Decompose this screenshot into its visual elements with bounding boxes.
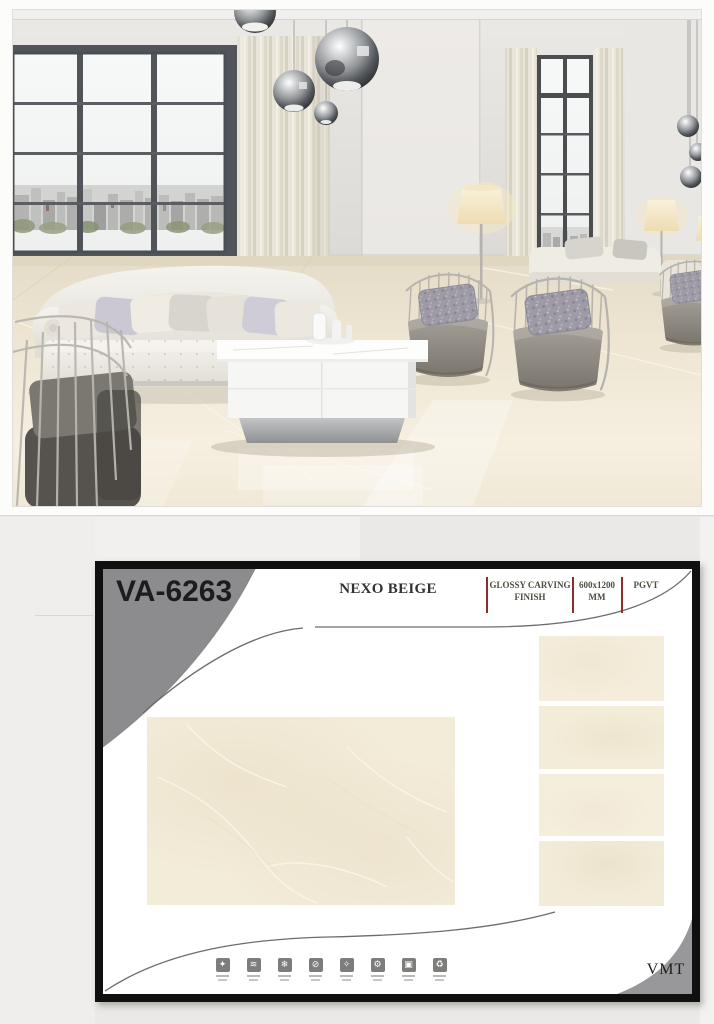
tile-preview-large[interactable] [147, 717, 455, 905]
feature-label-lines [340, 975, 353, 977]
anti-bacterial-icon: ⊘ [309, 958, 323, 972]
brand-logo: VMT [641, 961, 691, 979]
stain-resistant-icon: ✧ [340, 958, 354, 972]
easy-to-clean-icon: ✦ [216, 958, 230, 972]
room-photo [13, 10, 701, 506]
tile-swatch-4[interactable] [539, 841, 664, 906]
spec-size-line1: 600x1200 [579, 580, 615, 590]
feature-icons-row: ✦ ≋ ❄ ⊘ ✧ ⚙ ▣ [215, 958, 447, 981]
feature-stain-resistant: ✧ [339, 958, 354, 981]
feature-label-lines [280, 979, 289, 981]
feature-label-lines [311, 979, 320, 981]
spec-type-line1: PGVT [633, 580, 658, 590]
background-right-strip [700, 517, 714, 1024]
city-skyline [13, 185, 225, 234]
feature-label-lines [433, 975, 446, 977]
frost-proof-icon: ❄ [278, 958, 292, 972]
feature-scratch-resistant: ⚙ [370, 958, 385, 981]
spec-type: PGVT [623, 579, 669, 591]
feature-label-lines [342, 979, 351, 981]
brand-corner [617, 919, 692, 994]
tile-swatch-1[interactable] [539, 636, 664, 701]
feature-label-lines [216, 975, 229, 977]
spec-finish-line1: GLOSSY CARVING [489, 580, 570, 590]
feature-label-lines [435, 979, 444, 981]
double-charge-icon: ▣ [402, 958, 416, 972]
product-card[interactable]: VA-6263 NEXO BEIGE GLOSSY CARVING FINISH… [95, 561, 700, 1002]
eco-friendly-icon: ♻ [433, 958, 447, 972]
product-code: VA-6263 [116, 575, 232, 609]
feature-label-lines [218, 979, 227, 981]
feature-water-resistant: ≋ [246, 958, 261, 981]
spec-size-line2: MM [589, 592, 606, 602]
product-name: NEXO BEIGE [318, 581, 458, 598]
feature-label-lines [371, 975, 384, 977]
room-scene [13, 10, 701, 506]
spec-finish-line2: FINISH [514, 592, 545, 602]
window-right [537, 55, 593, 257]
feature-label-lines [309, 975, 322, 977]
spec-size: 600x1200 MM [574, 579, 620, 603]
spec-finish: GLOSSY CARVING FINISH [489, 579, 571, 603]
scratch-resistant-icon: ⚙ [371, 958, 385, 972]
feature-label-lines [247, 975, 260, 977]
feature-eco-friendly: ♻ [432, 958, 447, 981]
background-fold-line [35, 615, 93, 616]
catalog-section: VA-6263 NEXO BEIGE GLOSSY CARVING FINISH… [0, 517, 714, 1024]
feature-label-lines [278, 975, 291, 977]
room-photo-panel[interactable] [0, 0, 714, 516]
background-left-strip [0, 517, 95, 1024]
feature-label-lines [373, 979, 382, 981]
feature-label-lines [402, 975, 415, 977]
feature-frost-proof: ❄ [277, 958, 292, 981]
feature-easy-to-clean: ✦ [215, 958, 230, 981]
tile-swatch-2[interactable] [539, 706, 664, 769]
feature-label-lines [249, 979, 258, 981]
feature-label-lines [404, 979, 413, 981]
spec-divider [486, 577, 488, 613]
tile-swatch-3[interactable] [539, 774, 664, 836]
marble-veins [147, 717, 455, 905]
feature-double-charge: ▣ [401, 958, 416, 981]
water-resistant-icon: ≋ [247, 958, 261, 972]
window-left [13, 45, 237, 261]
feature-anti-bacterial: ⊘ [308, 958, 323, 981]
